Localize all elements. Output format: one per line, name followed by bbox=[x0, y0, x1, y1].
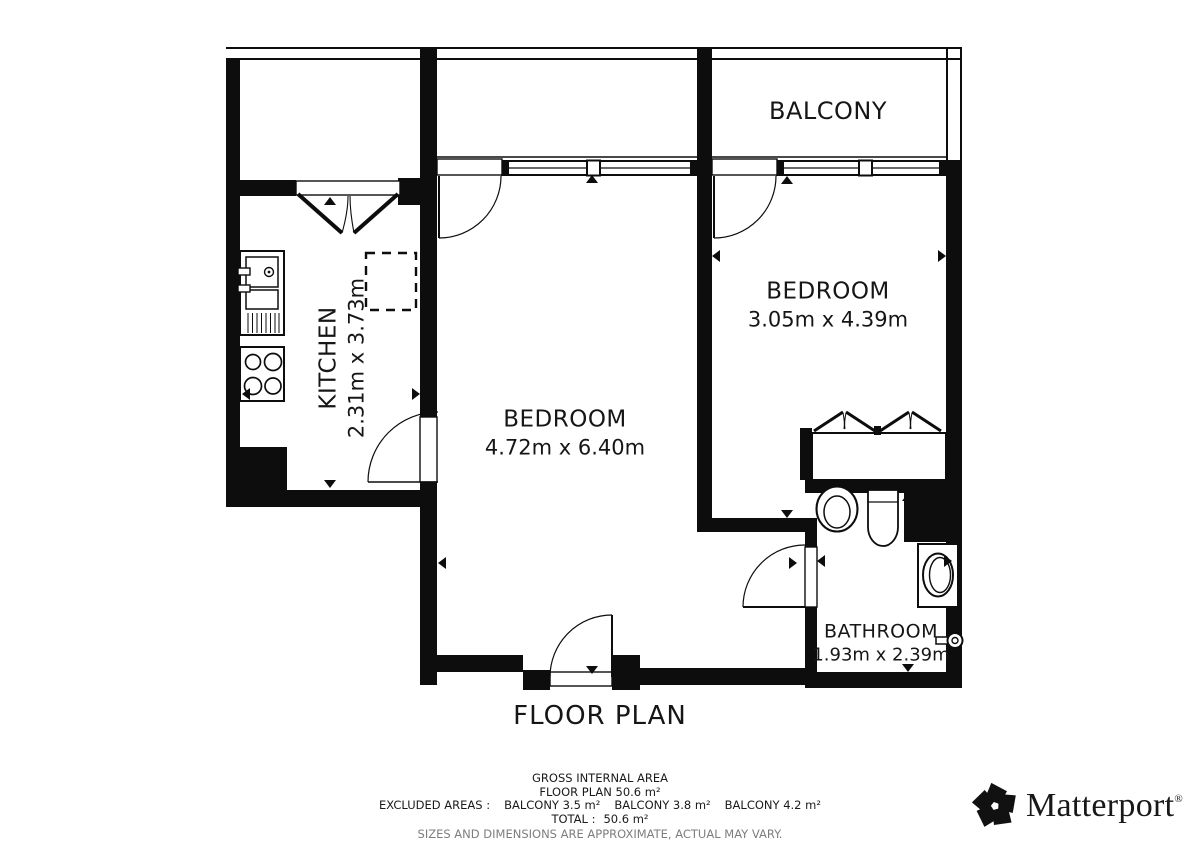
wardrobe bbox=[812, 426, 946, 480]
bedroom-main-label: BEDROOM 4.72m x 6.40m bbox=[485, 407, 645, 460]
measure-arrow bbox=[781, 510, 793, 518]
matterport-pinwheel-icon bbox=[971, 782, 1019, 830]
room-name: BATHROOM bbox=[812, 621, 949, 643]
measure-arrow bbox=[781, 176, 793, 184]
page-title: FLOOR PLAN bbox=[513, 701, 687, 731]
washbasin-icon bbox=[868, 490, 898, 546]
window bbox=[502, 161, 697, 176]
bathroom-label: BATHROOM 1.93m x 2.39m bbox=[812, 621, 949, 666]
total-label: TOTAL : bbox=[551, 813, 595, 826]
room-dimensions: 1.93m x 2.39m bbox=[812, 645, 949, 666]
measure-arrow bbox=[324, 480, 336, 488]
room-name: BALCONY bbox=[769, 97, 887, 125]
measure-arrow bbox=[438, 557, 446, 569]
window bbox=[777, 161, 946, 176]
measure-arrow bbox=[789, 557, 797, 569]
french-door-icon bbox=[296, 181, 400, 233]
appliance-dashed-outline bbox=[366, 253, 416, 310]
excluded-area-item: BALCONY 3.5 m² bbox=[504, 799, 600, 812]
measure-arrow bbox=[902, 493, 914, 501]
measure-arrow bbox=[324, 197, 336, 205]
room-dimensions: 4.72m x 6.40m bbox=[485, 436, 645, 460]
shower-icon bbox=[918, 544, 958, 607]
excluded-areas-label: EXCLUDED AREAS : bbox=[379, 799, 490, 812]
room-name: BEDROOM bbox=[485, 407, 645, 433]
kitchen-sink-icon bbox=[238, 251, 284, 335]
door-arc bbox=[368, 412, 438, 482]
balcony-label: BALCONY bbox=[769, 97, 887, 125]
measure-arrow bbox=[817, 555, 825, 567]
excluded-area-item: BALCONY 3.8 m² bbox=[614, 799, 710, 812]
toilet-icon bbox=[817, 487, 858, 532]
brand-name: Matterport bbox=[1026, 787, 1174, 824]
measure-arrow bbox=[712, 250, 720, 262]
door-arc bbox=[712, 159, 777, 238]
door-arc bbox=[550, 615, 612, 686]
measure-arrow bbox=[412, 388, 420, 400]
room-dimensions: 3.05m x 4.39m bbox=[748, 308, 908, 332]
kitchen-label: KITCHEN 2.31m x 3.73m bbox=[316, 278, 369, 438]
matterport-logo: Matterport® bbox=[971, 779, 1183, 833]
excluded-area-item: BALCONY 4.2 m² bbox=[725, 799, 821, 812]
measure-arrow bbox=[938, 250, 946, 262]
door-arc bbox=[437, 159, 502, 238]
total-value: 50.6 m² bbox=[603, 813, 648, 826]
room-dimensions: 2.31m x 3.73m bbox=[345, 278, 369, 438]
door-arc bbox=[743, 545, 817, 607]
room-name: BEDROOM bbox=[748, 279, 908, 305]
registered-mark: ® bbox=[1174, 793, 1183, 805]
brand-wordmark: Matterport® bbox=[1026, 787, 1183, 825]
bifold-door-icon bbox=[814, 412, 875, 431]
floor-plan-page: BALCONY KITCHEN 2.31m x 3.73m BEDROOM 4.… bbox=[0, 0, 1200, 848]
room-name: KITCHEN bbox=[316, 278, 342, 438]
bifold-door-icon bbox=[880, 412, 941, 431]
bedroom-second-label: BEDROOM 3.05m x 4.39m bbox=[748, 279, 908, 332]
